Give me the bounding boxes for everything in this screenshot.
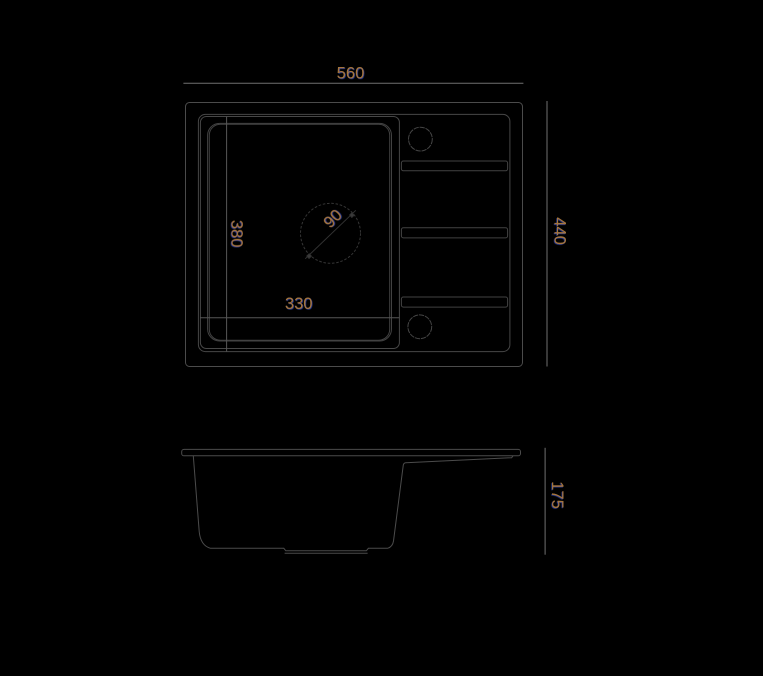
svg-text:440: 440 [551,217,570,245]
svg-text:175: 175 [548,481,567,509]
svg-text:330: 330 [285,294,313,313]
svg-text:380: 380 [227,220,246,248]
svg-text:560: 560 [337,63,365,82]
